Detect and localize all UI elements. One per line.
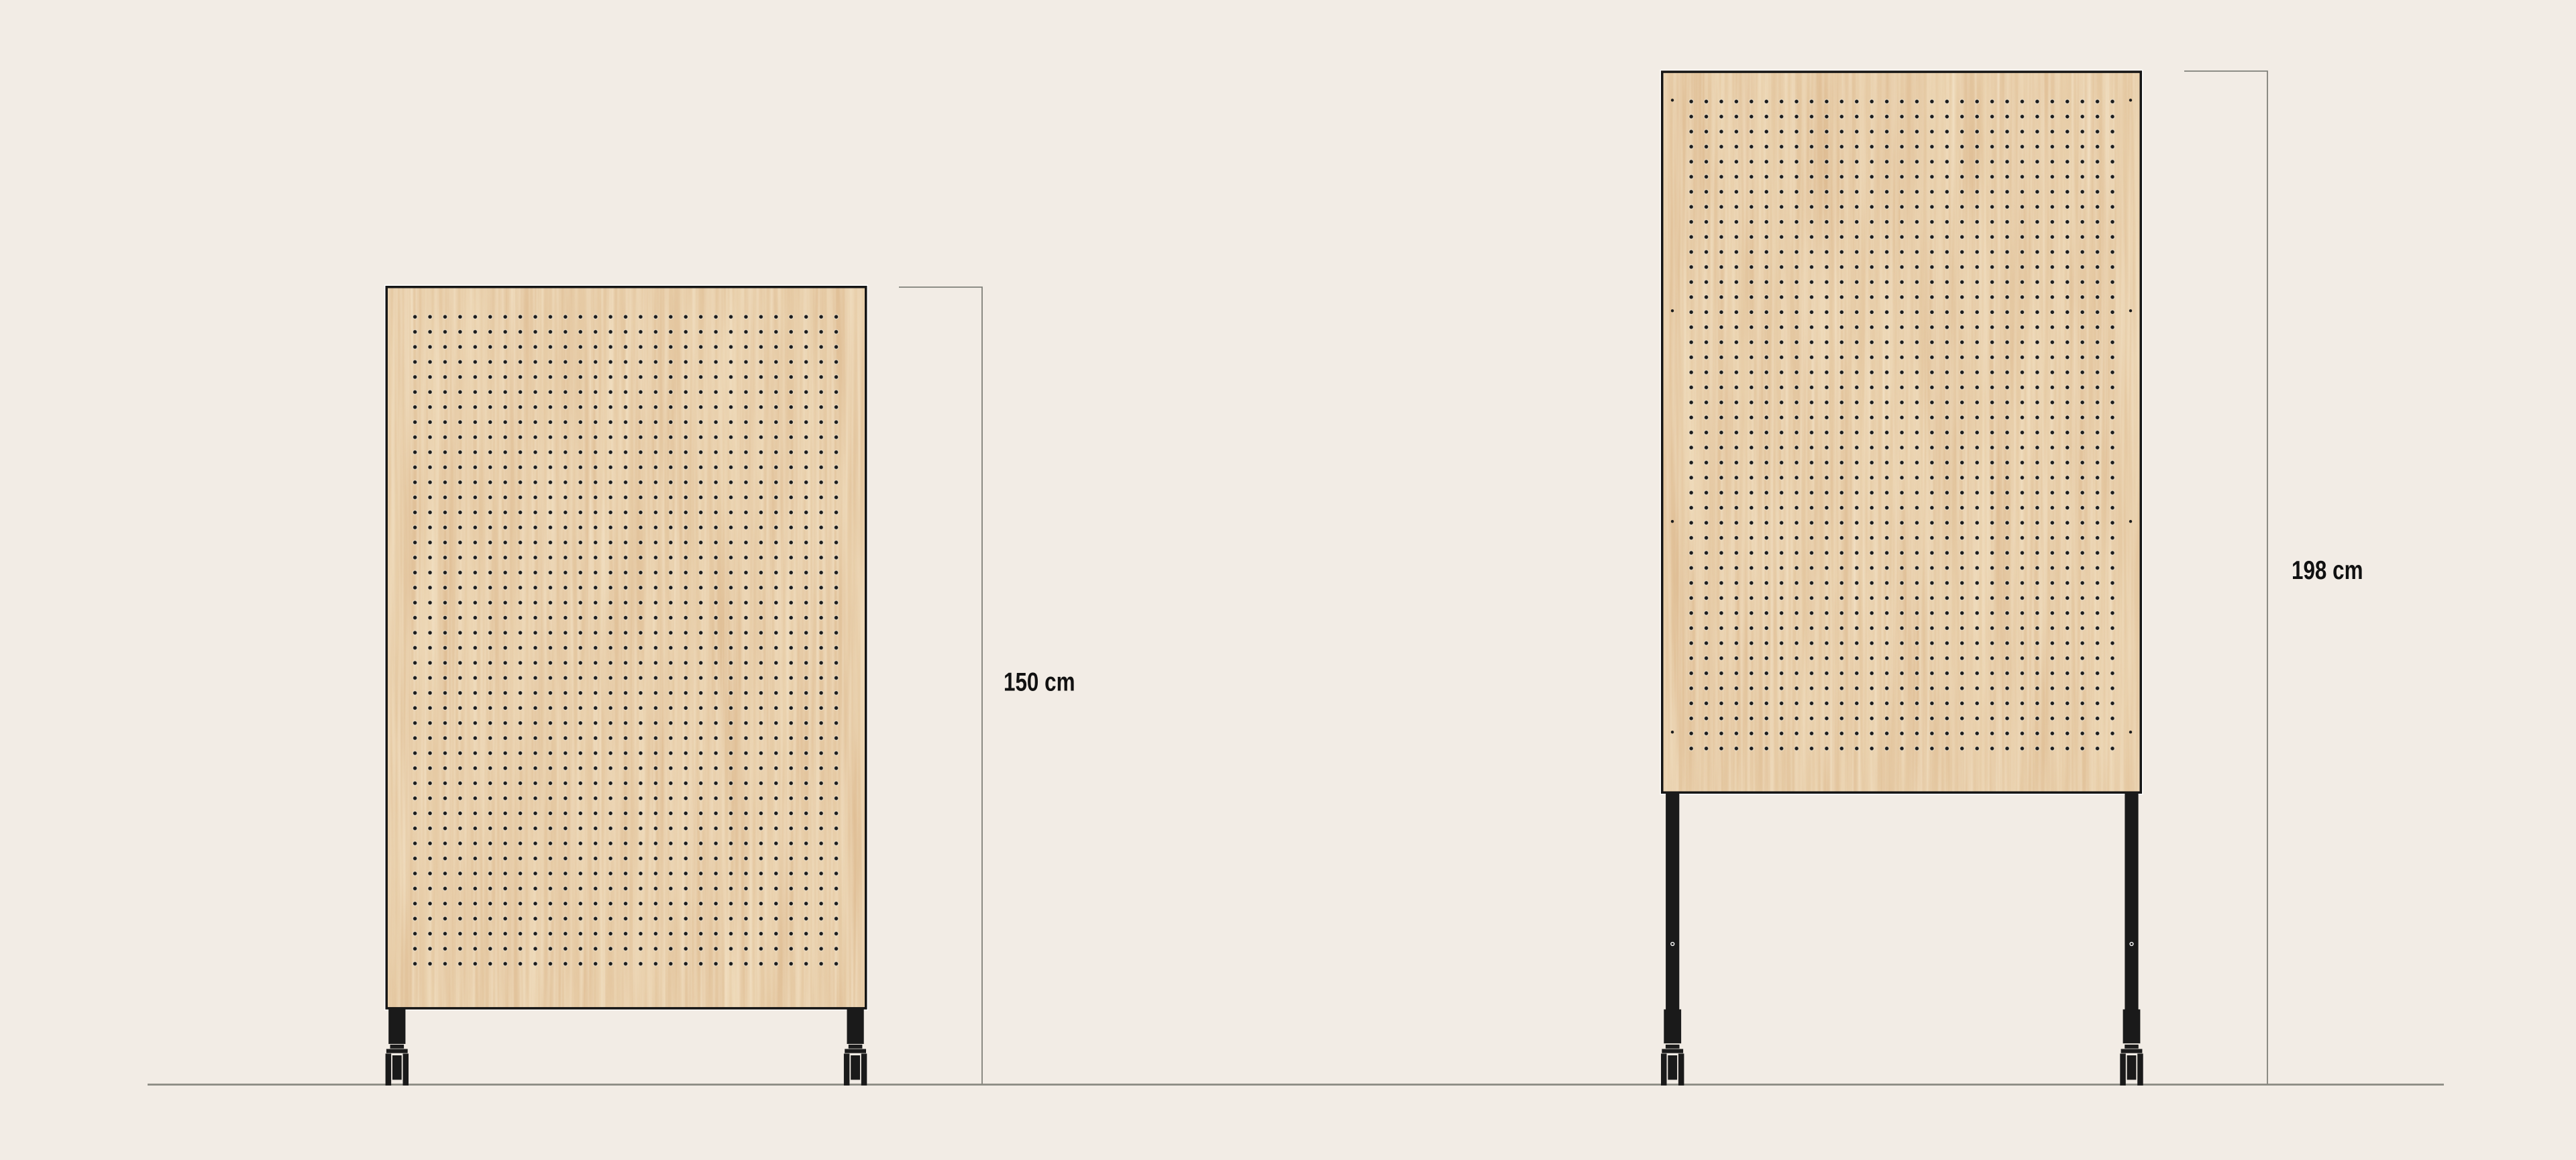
svg-text:150 cm: 150 cm [1004, 668, 1075, 697]
svg-text:198 cm: 198 cm [2292, 556, 2363, 585]
